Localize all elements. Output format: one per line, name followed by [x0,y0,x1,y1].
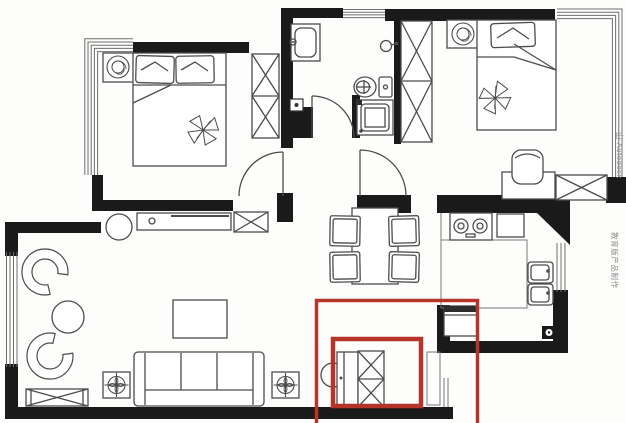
desk-chair [502,150,555,199]
sofa [134,352,264,406]
entry-cabinet [444,306,477,336]
cabinet-x-living [234,212,268,232]
door-bathroom [312,96,354,138]
window-bathroom-top [343,10,385,18]
entry-area [321,351,448,407]
counter-outline [441,240,527,308]
side-round-table [52,301,84,333]
stove [450,213,492,240]
armchair-top [12,239,74,301]
dining-area [330,208,420,284]
kitchen-sink-double [528,262,553,305]
window-bedroom2-corner [557,9,622,177]
dining-chair [330,216,361,247]
window-living-left [7,252,18,367]
door-bedroom1 [239,152,283,196]
bathroom-sink [290,24,320,61]
switch-box [290,99,303,111]
counter-block [497,214,524,237]
toilet [354,77,392,97]
side-table-right [272,372,299,398]
bench-x [26,389,88,406]
watermark-text-bottom: 教育版产品制作 [610,232,620,289]
sideboard [137,213,231,230]
dining-chair [330,252,361,283]
wardrobe-bedroom1 [252,54,279,138]
door-bedroom2 [360,150,406,196]
double-bed [133,53,226,166]
dining-chair [389,216,420,247]
nightstand-plant-2 [447,20,479,48]
entry-x-cabinet [358,351,384,407]
bedroom1 [103,53,279,166]
washing-machine [357,100,393,135]
coffee-table [173,300,227,338]
entry-door-frame [427,352,448,407]
watermark-text-top: 由 Autodesk [615,132,625,179]
floor-drain [542,326,556,339]
kitchen [441,213,556,339]
bedroom2 [401,20,607,200]
entry-door-panel [337,352,358,405]
cabinet-x-bedroom2 [556,175,607,200]
round-pot [106,214,132,240]
living-room [12,212,299,406]
armchair-bottom [17,326,79,388]
wardrobe-bedroom2 [401,21,432,142]
floorplan-canvas: 由 Autodesk 教育版产品制作 [0,0,626,423]
floorplan-drawing: 由 Autodesk 教育版产品制作 [0,0,626,423]
side-table-left [103,372,130,398]
nightstand-plant [103,53,134,82]
dining-chair [389,252,420,283]
single-bed [476,20,556,130]
window-kitchen-right [557,243,565,292]
